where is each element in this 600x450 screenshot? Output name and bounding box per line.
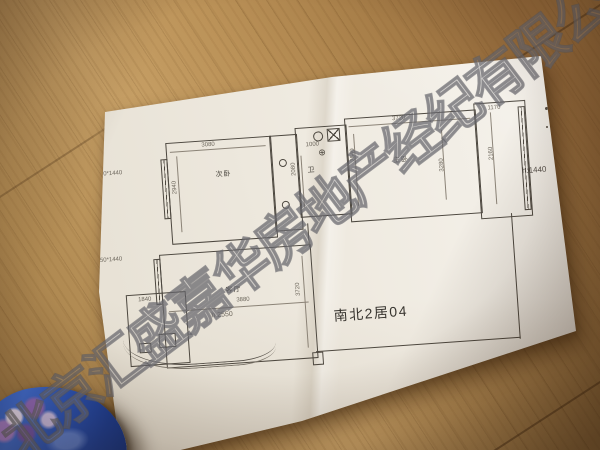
dim-label: 3080 bbox=[201, 142, 215, 149]
paper-speck bbox=[545, 107, 548, 110]
photo-scene: ⊕ 3080 2940 2080 1000 3 bbox=[0, 0, 600, 450]
dim-label: 2080 bbox=[291, 162, 298, 176]
dim-label: 2160 bbox=[488, 147, 495, 161]
paper-speck bbox=[546, 126, 548, 128]
dim-label: 3720 bbox=[295, 282, 302, 296]
plan-title: 南北2居04 bbox=[333, 301, 409, 326]
wall bbox=[316, 337, 521, 352]
height-note: h:1440 bbox=[522, 165, 547, 176]
wall bbox=[511, 213, 521, 339]
door-threshold bbox=[312, 352, 324, 366]
window-size-label: 1450*1440 bbox=[93, 256, 122, 264]
drain-icon: ⊕ bbox=[318, 147, 326, 158]
washer-icon bbox=[327, 128, 341, 142]
dim-label: 2940 bbox=[172, 181, 179, 195]
window-size-label: 1430*1440 bbox=[93, 170, 122, 178]
dim-label: 1000 bbox=[306, 141, 320, 148]
room-label-bedroom2: 次卧 bbox=[215, 169, 232, 180]
